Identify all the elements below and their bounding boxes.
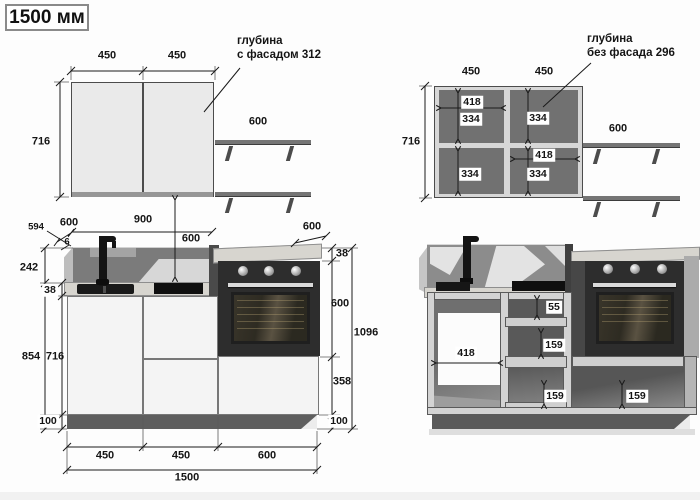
- dim-total-width: 1500: [175, 473, 199, 484]
- drawing-title-box: 1500 мм: [5, 4, 89, 31]
- carcass-mid-wall: [500, 292, 509, 412]
- sink-divider: [103, 285, 106, 293]
- dim-inner-width-bottom: 418: [533, 149, 555, 162]
- oven-knob: [657, 264, 667, 274]
- oven-handle: [593, 283, 676, 287]
- drawer-shelf: [505, 356, 567, 368]
- depth-note-line1: глубина: [587, 34, 633, 46]
- dim-plinth-left: 100: [37, 415, 59, 428]
- dim-carcass-height: 716: [402, 137, 420, 148]
- floor-strip: [429, 429, 695, 435]
- kitchen-drawing-canvas: 1500 мм: [0, 0, 700, 500]
- front-divider-vertical: [142, 296, 144, 415]
- backsplash-reflection: [90, 247, 136, 257]
- dim-carcass-depth: 594: [28, 222, 44, 232]
- dim-gap: 6: [64, 237, 69, 247]
- drawer-front-below-oven: [218, 356, 319, 415]
- shelf-bracket: [225, 198, 233, 213]
- dim-span: 900: [134, 215, 152, 226]
- dim-drawer-opening: 159: [626, 390, 648, 403]
- dim-drawer-opening: 159: [544, 390, 566, 403]
- dim-wall-right-door-width: 450: [168, 51, 186, 62]
- oven-right-side: [684, 256, 699, 358]
- carcass-right-wall: [684, 356, 697, 412]
- wall-shelf-upper: [215, 140, 311, 145]
- dim-plinth-right: 100: [328, 415, 350, 428]
- plinth: [67, 415, 317, 429]
- wall-shelf-upper: [583, 143, 680, 148]
- oven-rack-lines: [602, 300, 668, 328]
- shelf-bracket: [286, 198, 294, 213]
- dim-shelf-width: 600: [249, 117, 267, 128]
- oven-rack-lines: [237, 300, 304, 330]
- shelf-bracket: [593, 202, 601, 217]
- front-divider-horizontal: [144, 358, 218, 360]
- dim-bottom-600: 600: [258, 451, 276, 462]
- dim-total-left: 854: [22, 352, 40, 363]
- dim-inner-cabinet-width: 418: [455, 347, 477, 360]
- dim-top-rail-gap: 55: [546, 301, 562, 314]
- shelf-bracket: [652, 202, 660, 217]
- dim-total-height: 1096: [354, 328, 378, 339]
- dim-wall-left-door-width: 450: [98, 51, 116, 62]
- dim-inner-height: 334: [527, 112, 549, 125]
- dim-bottom-450a: 450: [96, 451, 114, 462]
- oven-knob: [291, 266, 301, 276]
- wall-cabinet-door-divider: [142, 82, 144, 197]
- oven-knob: [238, 266, 248, 276]
- dim-below-oven: 358: [333, 377, 351, 388]
- hob: [512, 281, 565, 291]
- carcass-bottom-rail: [427, 407, 697, 415]
- dim-wall-height: 716: [32, 137, 50, 148]
- wall-shelf-lower: [215, 192, 311, 197]
- oven-knob: [603, 264, 613, 274]
- dim-apron-plus-counter: 242: [20, 263, 38, 274]
- plinth: [432, 415, 690, 429]
- sink: [436, 282, 470, 291]
- dim-inner-height: 334: [527, 168, 549, 181]
- oven-knob: [264, 266, 274, 276]
- depth-note-line1: глубина: [237, 36, 283, 48]
- faucet-tip: [112, 241, 116, 248]
- dim-apron-height: 600: [182, 234, 200, 245]
- depth-note-line2: без фасада 296: [587, 48, 675, 60]
- hob: [154, 283, 203, 294]
- dim-counter-depth: 600: [60, 218, 78, 229]
- shelf-bracket: [652, 149, 660, 164]
- dim-shelf-width: 600: [609, 124, 627, 135]
- dim-carcass-left-width: 450: [462, 67, 480, 78]
- faucet-base: [96, 279, 109, 285]
- shelf-bracket: [286, 146, 294, 161]
- shelf-bracket: [593, 149, 601, 164]
- dim-inner-width-top: 418: [461, 96, 483, 109]
- dim-carcass-right-width: 450: [535, 67, 553, 78]
- drawing-title: 1500 мм: [9, 7, 85, 29]
- dim-bottom-450b: 450: [172, 451, 190, 462]
- drawer-shelf: [505, 317, 567, 327]
- oven-cabinet-shelf: [572, 356, 684, 367]
- dim-drawer-opening: 159: [543, 339, 565, 352]
- dim-base-carcass-height: 716: [46, 352, 64, 363]
- wall-shelf-lower: [583, 196, 680, 201]
- shelf-bracket: [225, 146, 233, 161]
- oven-handle: [228, 283, 313, 287]
- dim-inner-height: 334: [460, 113, 482, 126]
- dim-oven-niche: 600: [331, 299, 349, 310]
- depth-note-line2: с фасадом 312: [237, 50, 321, 62]
- wall-cabinet-bottom-edge: [72, 192, 213, 197]
- dim-oven-depth: 600: [303, 222, 321, 233]
- dim-counter-thickness-left: 38: [42, 284, 58, 297]
- scan-shadow-band: [0, 492, 700, 500]
- oven-left-strip: [571, 261, 585, 357]
- dim-inner-height: 334: [459, 168, 481, 181]
- oven-knob: [630, 264, 640, 274]
- dim-counter-thickness-right: 38: [336, 249, 348, 260]
